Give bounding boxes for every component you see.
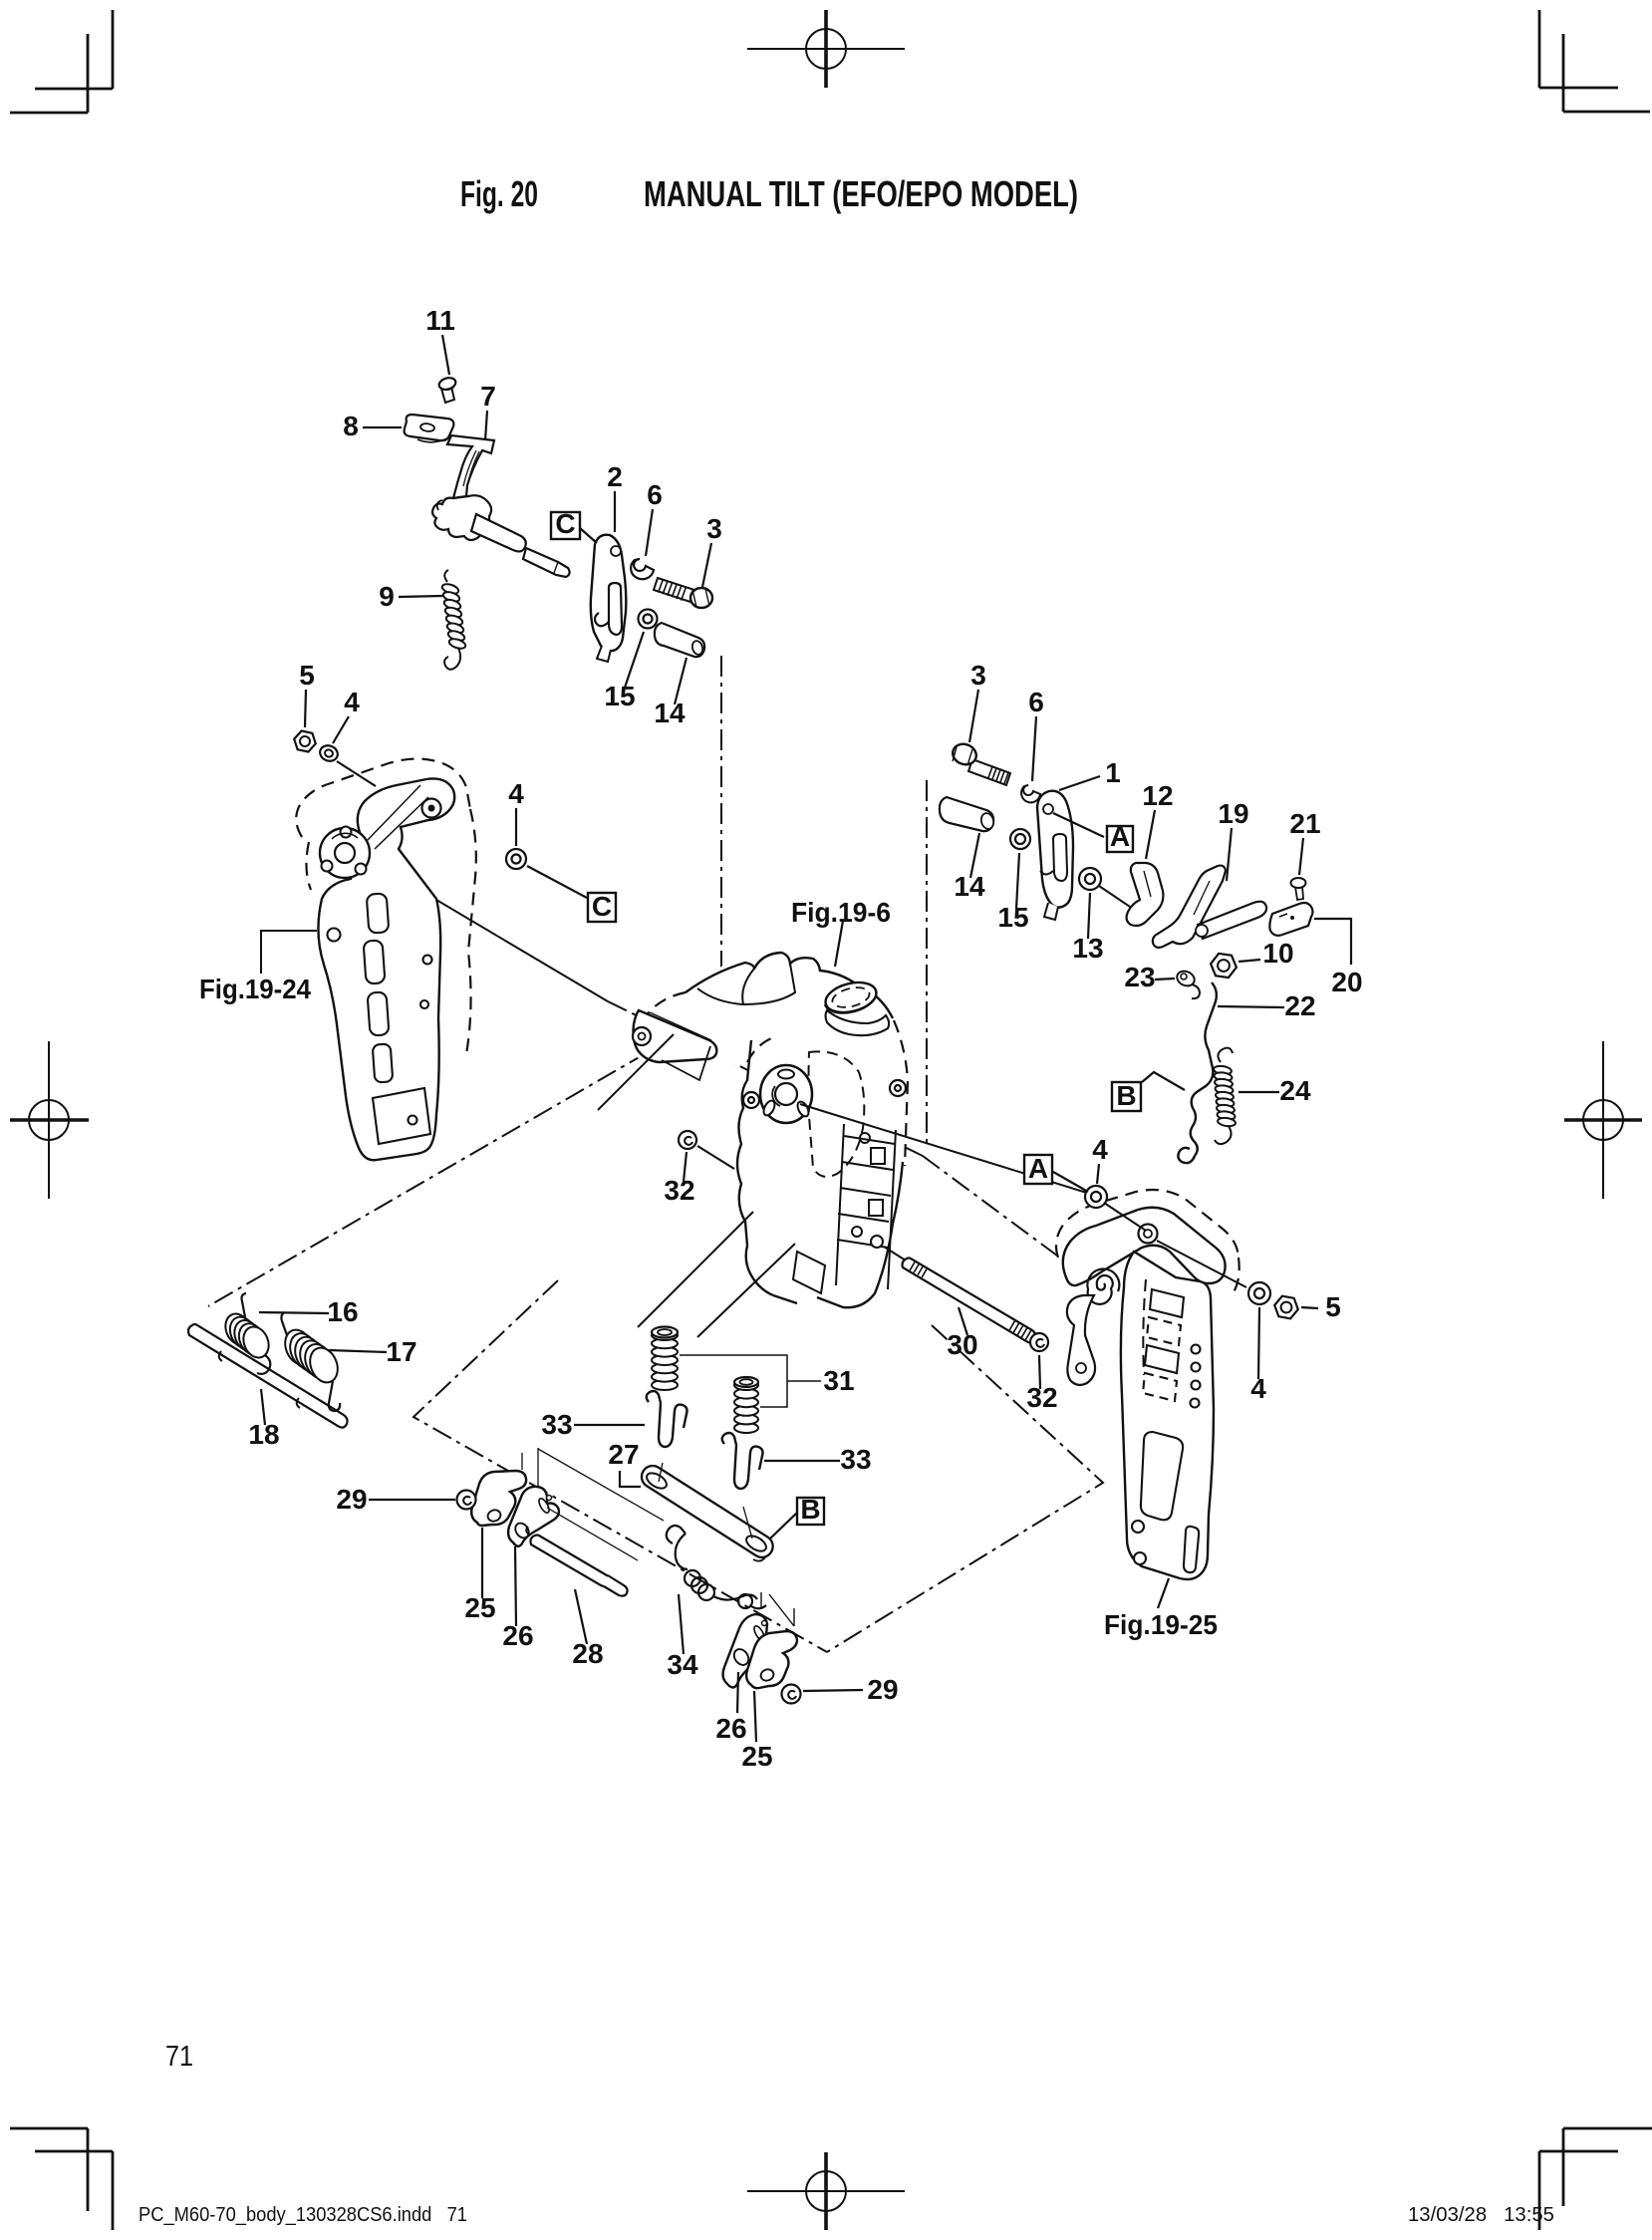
svg-text:32: 32 [1026, 1382, 1057, 1413]
svg-text:7: 7 [480, 381, 496, 412]
svg-text:5: 5 [1325, 1291, 1341, 1322]
svg-text:C: C [592, 891, 612, 922]
svg-text:B: B [1116, 1080, 1136, 1111]
svg-text:33: 33 [541, 1409, 572, 1440]
svg-text:3: 3 [706, 513, 722, 544]
svg-text:21: 21 [1289, 808, 1320, 839]
svg-text:33: 33 [840, 1444, 871, 1475]
svg-text:24: 24 [1279, 1075, 1311, 1106]
svg-text:4: 4 [344, 687, 360, 717]
svg-text:4: 4 [508, 778, 524, 809]
svg-text:26: 26 [715, 1713, 746, 1744]
svg-text:29: 29 [336, 1484, 367, 1515]
svg-text:2: 2 [607, 461, 623, 492]
svg-text:15: 15 [604, 681, 635, 711]
svg-text:Fig.19-6: Fig.19-6 [791, 897, 891, 928]
svg-text:MANUAL TILT (EFO/EPO MODEL): MANUAL TILT (EFO/EPO MODEL) [644, 173, 1078, 214]
svg-text:22: 22 [1284, 990, 1315, 1021]
svg-text:23: 23 [1124, 962, 1155, 992]
svg-text:Fig. 20: Fig. 20 [460, 173, 538, 214]
svg-text:A: A [1110, 821, 1130, 852]
svg-text:6: 6 [1028, 687, 1044, 717]
svg-text:11: 11 [425, 305, 455, 336]
svg-text:1: 1 [1105, 757, 1121, 788]
svg-text:25: 25 [464, 1592, 495, 1623]
svg-text:Fig.19-24: Fig.19-24 [199, 974, 311, 1004]
svg-text:17: 17 [386, 1336, 416, 1367]
svg-text:20: 20 [1331, 967, 1362, 997]
svg-text:A: A [1028, 1153, 1048, 1184]
svg-text:C: C [555, 508, 575, 539]
svg-text:12: 12 [1142, 780, 1173, 811]
svg-text:26: 26 [502, 1620, 533, 1651]
svg-text:8: 8 [343, 411, 359, 441]
svg-text:29: 29 [867, 1674, 898, 1705]
svg-text:19: 19 [1218, 798, 1248, 829]
svg-text:32: 32 [664, 1175, 694, 1206]
svg-text:30: 30 [947, 1329, 977, 1360]
svg-text:13/03/28 13:55: 13/03/28 13:55 [1408, 2204, 1554, 2226]
svg-text:3: 3 [970, 660, 986, 691]
svg-text:5: 5 [299, 660, 315, 691]
svg-text:25: 25 [741, 1741, 772, 1772]
svg-text:Fig.19-25: Fig.19-25 [1104, 1609, 1218, 1640]
svg-text:14: 14 [954, 871, 985, 902]
svg-text:4: 4 [1092, 1134, 1108, 1165]
svg-text:71: 71 [165, 2041, 193, 2073]
svg-text:27: 27 [608, 1439, 639, 1470]
svg-text:9: 9 [379, 581, 395, 612]
svg-text:15: 15 [997, 902, 1028, 933]
svg-text:B: B [800, 1494, 820, 1525]
svg-text:28: 28 [572, 1638, 603, 1669]
svg-text:10: 10 [1262, 938, 1293, 969]
svg-text:31: 31 [823, 1365, 854, 1396]
svg-text:PC_M60-70_body_130328CS6.indd: PC_M60-70_body_130328CS6.indd 71 [138, 2204, 467, 2226]
svg-text:14: 14 [654, 698, 686, 728]
svg-text:16: 16 [327, 1296, 358, 1327]
svg-text:6: 6 [647, 479, 663, 510]
